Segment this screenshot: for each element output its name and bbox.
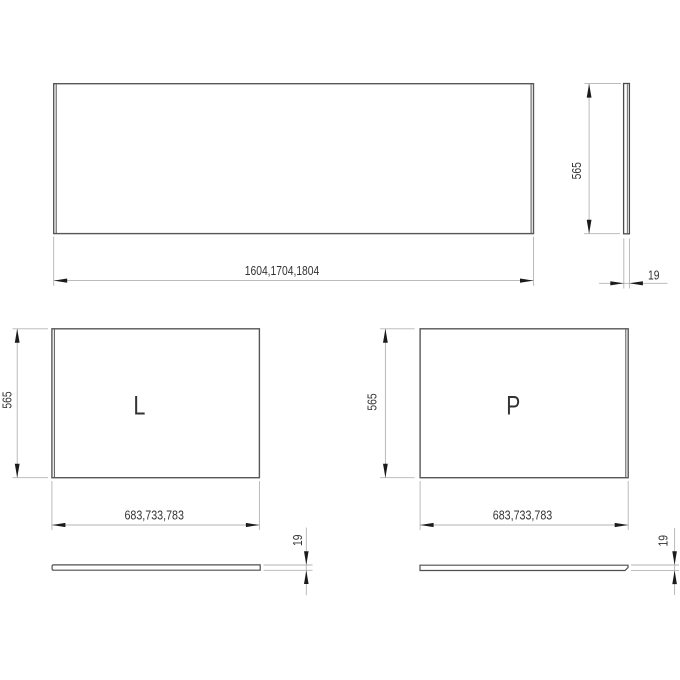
svg-text:1604,1704,1804: 1604,1704,1804	[245, 263, 320, 278]
svg-text:565: 565	[364, 393, 379, 410]
svg-text:565: 565	[0, 391, 14, 408]
svg-text:19: 19	[648, 267, 660, 282]
svg-text:19: 19	[655, 535, 670, 547]
svg-text:565: 565	[569, 162, 584, 179]
svg-text:L: L	[133, 391, 145, 421]
svg-text:683,733,783: 683,733,783	[124, 508, 184, 523]
svg-text:19: 19	[290, 534, 305, 546]
svg-text:683,733,783: 683,733,783	[493, 508, 553, 523]
svg-text:P: P	[506, 391, 520, 421]
